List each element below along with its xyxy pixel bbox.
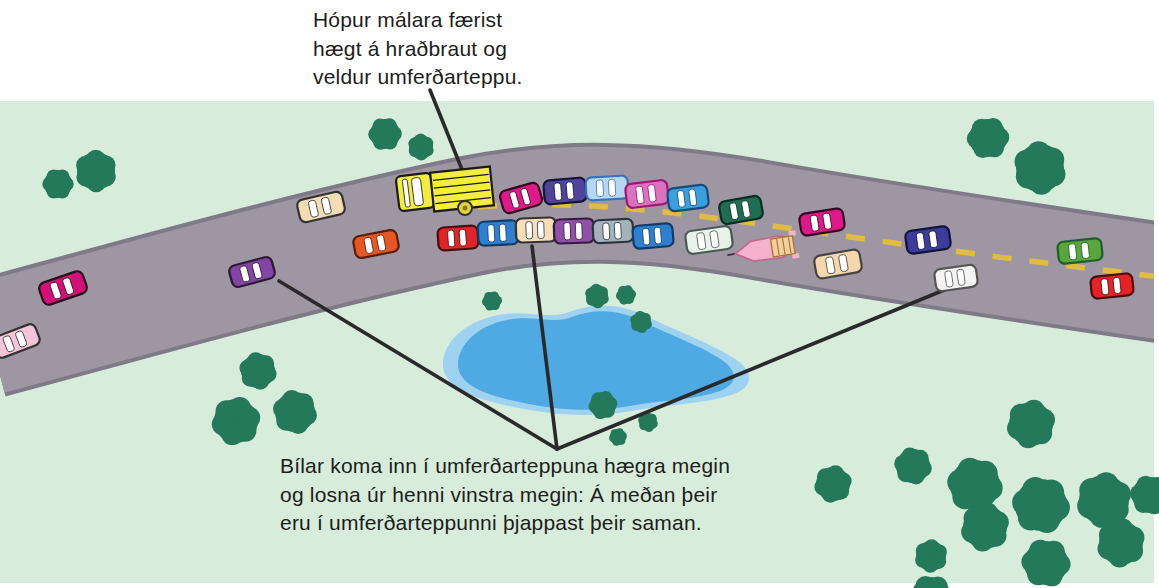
car-jam-blue3 [632,223,674,249]
car-jam-blue [667,184,710,212]
car-jam-cream [516,217,557,242]
car-jam-purple [554,218,595,243]
car-jam-gray [592,218,633,243]
truck-cab [395,172,434,211]
truck-wheel [458,201,472,215]
car-right-red [1090,273,1134,299]
car-towing [685,225,734,254]
car-jam-lightblue [585,175,628,200]
traffic-jam-diagram: Hópur málara færist hægt á hraðbraut og … [0,0,1159,588]
car-right-white [934,264,979,292]
top-annotation: Hópur málara færist hægt á hraðbraut og … [313,6,523,92]
car-right-navy [905,226,952,255]
car-jam-blue2 [477,220,518,246]
car-jam-orchid [625,180,670,209]
car-jam-red [437,225,479,251]
car-jam-indigo [543,177,587,205]
car-right-green [1057,238,1103,264]
bottom-annotation: Bílar koma inn í umferðarteppuna hægra m… [280,452,730,538]
